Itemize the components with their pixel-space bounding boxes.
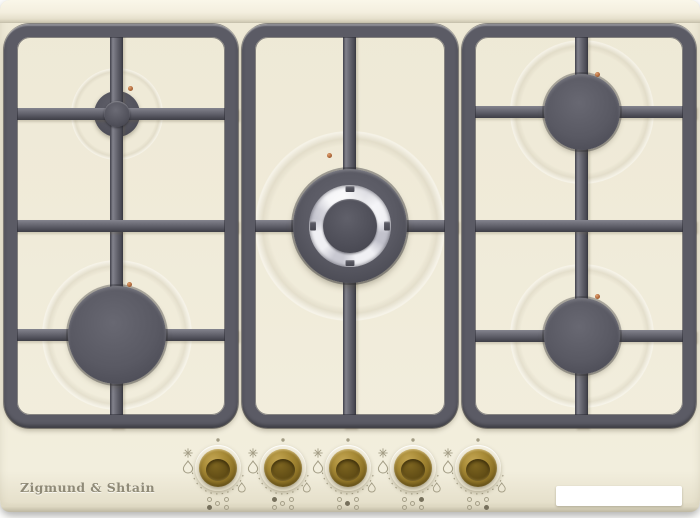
indicator-dot	[467, 497, 472, 502]
knob-bezel	[455, 445, 501, 491]
indicator-dot	[272, 505, 277, 510]
indicator-dot	[224, 497, 229, 502]
indicator-dot	[475, 501, 480, 506]
flame-max-icon	[313, 461, 322, 473]
knob-grip	[401, 459, 425, 481]
knob-grip	[271, 459, 295, 481]
indicator-dot	[289, 497, 294, 502]
burner-front-left-cap	[68, 286, 166, 384]
indicator-dot	[207, 505, 212, 510]
product-photo: Zigmund & Shtain	[0, 0, 700, 518]
knob-bezel	[195, 445, 241, 491]
off-position-dot	[476, 438, 479, 441]
spark-icon	[248, 448, 257, 457]
off-position-dot	[346, 438, 349, 441]
spark-icon	[443, 448, 452, 457]
burner-position-indicator	[270, 496, 296, 512]
flame-max-icon	[183, 461, 192, 473]
chrome-clip	[310, 222, 316, 231]
rating-sticker	[556, 486, 682, 506]
control-knob-3[interactable]	[329, 449, 367, 487]
ignition-electrode	[127, 282, 132, 287]
indicator-dot	[345, 501, 350, 506]
chrome-clip	[346, 186, 355, 192]
knob-bezel	[325, 445, 371, 491]
burner-position-indicator	[400, 496, 426, 512]
ignition-electrode	[595, 72, 600, 77]
burner-center-cap	[323, 199, 377, 253]
off-position-dot	[216, 438, 219, 441]
knob-grip	[336, 459, 360, 481]
burner-rear-right-cap	[544, 74, 620, 150]
off-position-dot	[411, 438, 414, 441]
knob-group-5	[436, 426, 520, 510]
knob-grip	[466, 459, 490, 481]
brand-logo: Zigmund & Shtain	[20, 480, 155, 495]
off-position-dot	[281, 438, 284, 441]
indicator-dot	[467, 505, 472, 510]
indicator-dot	[272, 497, 277, 502]
flame-min-icon	[498, 483, 505, 492]
chrome-clip	[384, 222, 390, 231]
indicator-dot	[410, 501, 415, 506]
control-knob-5[interactable]	[459, 449, 497, 487]
knob-bezel	[260, 445, 306, 491]
burner-front-right-cap	[544, 298, 620, 374]
knob-bezel	[390, 445, 436, 491]
burner-position-indicator	[465, 496, 491, 512]
flame-max-icon	[248, 461, 257, 473]
flame-max-icon	[378, 461, 387, 473]
knob-grip	[206, 459, 230, 481]
ignition-electrode	[128, 86, 133, 91]
ignition-electrode	[595, 294, 600, 299]
indicator-dot	[419, 497, 424, 502]
indicator-dot	[215, 501, 220, 506]
spark-icon	[183, 448, 192, 457]
flame-max-icon	[443, 461, 452, 473]
indicator-dot	[354, 505, 359, 510]
burner-position-indicator	[205, 496, 231, 512]
indicator-dot	[337, 497, 342, 502]
control-knob-1[interactable]	[199, 449, 237, 487]
indicator-dot	[289, 505, 294, 510]
control-knob-4[interactable]	[394, 449, 432, 487]
indicator-dot	[207, 497, 212, 502]
control-knob-2[interactable]	[264, 449, 302, 487]
chrome-ring	[309, 185, 391, 267]
indicator-dot	[402, 505, 407, 510]
burner-position-indicator	[335, 496, 361, 512]
spark-icon	[313, 448, 322, 457]
burner-rear-left-cap	[104, 101, 130, 127]
spark-icon	[378, 448, 387, 457]
hob-top-edge	[0, 0, 700, 23]
chrome-clip	[346, 260, 355, 266]
indicator-dot	[280, 501, 285, 506]
indicator-dot	[337, 505, 342, 510]
indicator-dot	[484, 497, 489, 502]
burner-center-wok	[293, 169, 407, 283]
indicator-dot	[354, 497, 359, 502]
indicator-dot	[484, 505, 489, 510]
indicator-dot	[224, 505, 229, 510]
indicator-dot	[402, 497, 407, 502]
gas-hob: Zigmund & Shtain	[0, 0, 700, 512]
indicator-dot	[419, 505, 424, 510]
ignition-electrode	[327, 153, 332, 158]
